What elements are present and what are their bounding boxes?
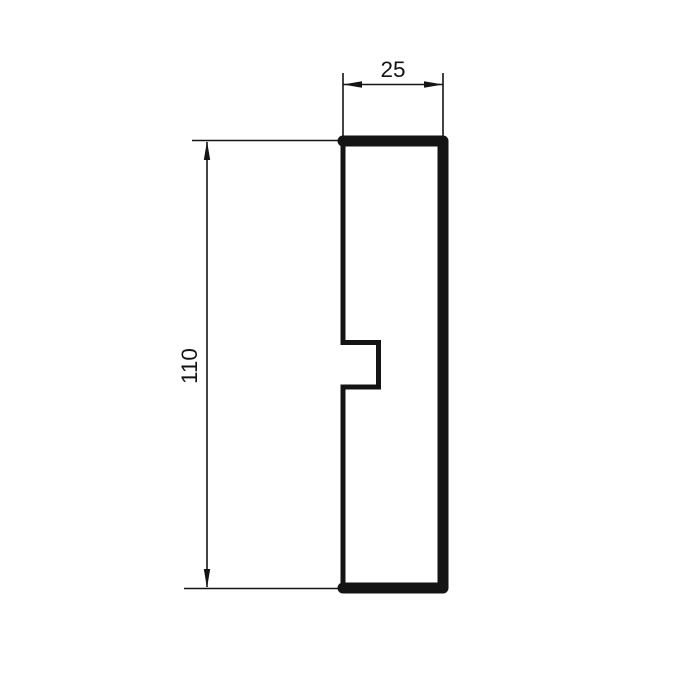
drawing-canvas: 25 110: [0, 0, 686, 686]
arrowhead-down-icon: [204, 569, 210, 588]
arrowhead-right-icon: [424, 81, 443, 88]
arrowhead-up-icon: [204, 141, 210, 160]
height-label-group: 110: [177, 348, 202, 384]
profile-back-edge-with-groove: [343, 137, 379, 591]
width-dimension-label: 25: [380, 57, 405, 82]
arrowhead-left-icon: [343, 81, 362, 88]
profile-drawing: 25 110: [0, 0, 686, 686]
profile-face-edge: [343, 141, 443, 588]
height-dimension-label: 110: [177, 348, 202, 384]
height-dimension: 110: [177, 141, 344, 589]
width-dimension: 25: [343, 57, 443, 136]
width-label-group: 25: [380, 57, 405, 82]
profile-outline: [343, 137, 443, 591]
